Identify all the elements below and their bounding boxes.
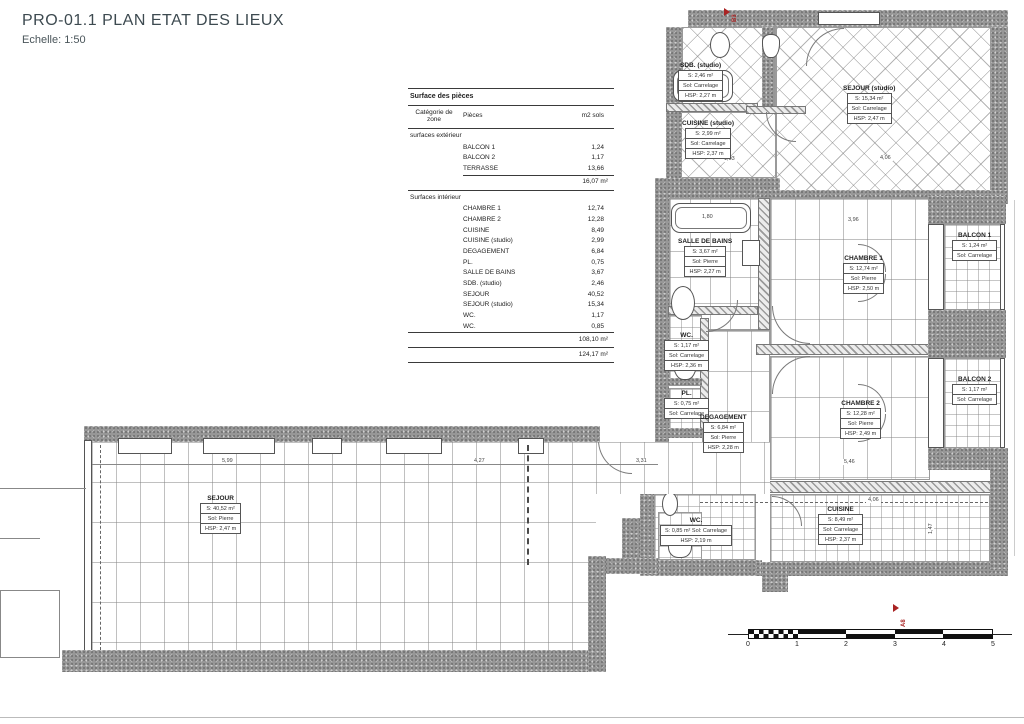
- room-info-box: S: 8,49 m² Sol: Carrelage HSP: 2,37 m: [818, 514, 863, 545]
- room-floor: Sol: Pierre: [685, 257, 724, 267]
- wall: [928, 196, 1006, 224]
- room-area: S: 12,28 m²: [841, 409, 880, 419]
- interieur-subtotal: 108,10 m²: [408, 333, 614, 347]
- row-value: 2,99: [544, 238, 614, 245]
- room-floor: Sol: Carrelage: [679, 81, 722, 91]
- window: [518, 438, 544, 454]
- room-floor: Sol: Carrelage: [819, 525, 862, 535]
- room-area: S: 8,49 m²: [819, 515, 862, 525]
- surface-table: Surface des pièces Catégorie de zone Piè…: [408, 88, 614, 363]
- wall: [928, 310, 1006, 334]
- room-label-wc2: WC. S: 0,85 m² Sol: Carrelage HSP: 2,19 …: [660, 517, 732, 546]
- room-height: HSP: 2,37 m: [819, 535, 862, 544]
- table-row: CUISINE8,49: [408, 225, 614, 236]
- dimension-label: 4,06: [878, 155, 893, 161]
- room-floor: Sol: Carrelage: [953, 251, 996, 260]
- row-value: 3,67: [544, 270, 614, 277]
- marker-arrow-b3: [724, 8, 730, 16]
- room-info-box: S: 1,17 m² Sol: Carrelage HSP: 2,36 m: [664, 340, 709, 371]
- row-label: CHAMBRE 2: [408, 217, 544, 224]
- table-title: Surface des pièces: [408, 89, 614, 105]
- room-info-box: S: 1,17 m² Sol: Carrelage: [952, 384, 997, 405]
- table-row: SDB. (studio)2,46: [408, 279, 614, 290]
- room-info-box: S: 6,84 m² Sol: Pierre HSP: 2,28 m: [703, 422, 744, 453]
- room-name: SEJOUR: [207, 495, 234, 502]
- room-name: WC.: [690, 517, 703, 524]
- section-exterieur: surfaces extérieur: [408, 129, 614, 143]
- wall: [928, 334, 1006, 358]
- room-label-salle-de-bains: SALLE DE BAINS S: 3,67 m² Sol: Pierre HS…: [678, 238, 732, 277]
- room-floor: Sol: Pierre: [201, 514, 240, 524]
- row-value: 12,74: [544, 206, 614, 213]
- floor-sejour: [92, 442, 596, 652]
- room-floor: Sol: Pierre: [841, 419, 880, 429]
- dimension-line: [700, 502, 988, 503]
- room-info-box: S: 40,52 m² Sol: Pierre HSP: 2,47 m: [200, 503, 241, 534]
- row-value: 15,34: [544, 302, 614, 309]
- dimension-label: 3,96: [846, 217, 861, 223]
- room-height: HSP: 2,27 m: [685, 267, 724, 276]
- demolition-dashline: [100, 445, 101, 650]
- room-area: S: 1,17 m²: [953, 385, 996, 395]
- window: [386, 438, 442, 454]
- row-value: 0,85: [544, 324, 614, 331]
- room-info-box: S: 15,34 m² Sol: Carrelage HSP: 2,47 m: [847, 93, 892, 124]
- wall: [756, 562, 1008, 576]
- scalebar-segment: [895, 630, 944, 638]
- scalebar: [748, 629, 993, 639]
- dimension-label: 1,47: [928, 521, 934, 536]
- room-area: S: 0,85 m² Sol: Carrelage: [661, 526, 731, 536]
- marker-a8: A8: [901, 619, 907, 627]
- wall: [990, 448, 1008, 570]
- section-interieur: Surfaces intérieur: [408, 191, 614, 205]
- scalebar-segment: [846, 630, 895, 638]
- toilet-icon: [762, 34, 780, 58]
- room-name: DEGAGEMENT: [700, 414, 747, 421]
- room-info-box: S: 2,46 m² Sol: Carrelage HSP: 2,27 m: [678, 70, 723, 101]
- room-label-balcon2: BALCON 2 S: 1,17 m² Sol: Carrelage: [952, 376, 997, 405]
- scalebar-tick: 5: [988, 641, 998, 648]
- table-row: CUISINE (studio)2,99: [408, 236, 614, 247]
- dimension-label: 1,80: [700, 214, 715, 220]
- room-area: S: 15,34 m²: [848, 94, 891, 104]
- room-area: S: 2,99 m²: [686, 129, 729, 139]
- room-label-wc1: WC. S: 1,17 m² Sol: Carrelage HSP: 2,36 …: [664, 332, 709, 371]
- sink-icon: [710, 32, 730, 58]
- wall: [762, 562, 788, 592]
- room-name: SALLE DE BAINS: [678, 238, 732, 245]
- room-height: HSP: 2,27 m: [679, 91, 722, 100]
- subtotal-value: 108,10 m²: [408, 337, 614, 344]
- balcony-edge: [1000, 358, 1005, 448]
- wall: [991, 27, 1008, 196]
- balcony-edge: [1000, 224, 1005, 310]
- exterieur-subtotal: 16,07 m²: [408, 176, 614, 190]
- col-category: Catégorie de zone: [408, 110, 460, 123]
- wall: [640, 560, 762, 576]
- dimension-line: [92, 464, 658, 465]
- room-label-balcon1: BALCON 1 S: 1,24 m² Sol: Carrelage: [952, 232, 997, 261]
- row-value: 1,24: [544, 145, 614, 152]
- table-row: SALLE DE BAINS3,67: [408, 268, 614, 279]
- room-height: HSP: 2,28 m: [704, 443, 743, 452]
- room-floor: Sol: Carrelage: [665, 351, 708, 361]
- window: [118, 438, 172, 454]
- scalebar-segment: [943, 630, 992, 638]
- room-label-chambre2: CHAMBRE 2 S: 12,28 m² Sol: Pierre HSP: 2…: [840, 400, 881, 439]
- room-name: SDB. (studio): [680, 62, 721, 69]
- row-label: PL.: [408, 260, 544, 267]
- subtotal-value: 16,07 m²: [408, 179, 614, 186]
- site-line: [1014, 200, 1015, 556]
- table-row: CHAMBRE 212,28: [408, 215, 614, 226]
- room-info-box: S: 12,74 m² Sol: Pierre HSP: 2,50 m: [843, 263, 884, 294]
- room-floor: Sol: Carrelage: [848, 104, 891, 114]
- room-name: PL.: [682, 390, 692, 397]
- wall: [588, 556, 606, 672]
- row-value: 1,17: [544, 155, 614, 162]
- row-label: SEJOUR: [408, 292, 544, 299]
- room-name: WC.: [680, 332, 693, 339]
- row-label: CUISINE (studio): [408, 238, 544, 245]
- grand-total: 124,17 m²: [408, 348, 614, 362]
- row-label: CHAMBRE 1: [408, 206, 544, 213]
- floor-plan-sheet: PRO-01.1 PLAN ETAT DES LIEUX Echelle: 1:…: [0, 0, 1024, 724]
- row-value: 13,66: [544, 166, 614, 173]
- floor-cuisine: [770, 494, 990, 562]
- room-label-chambre1: CHAMBRE 1 S: 12,74 m² Sol: Pierre HSP: 2…: [843, 255, 884, 294]
- table-row: TERRASSE13,66: [408, 164, 614, 175]
- window-wall: [84, 440, 92, 652]
- table-row: WC.0,85: [408, 322, 614, 333]
- table-row: DEGAGEMENT6,84: [408, 247, 614, 258]
- row-label: DEGAGEMENT: [408, 249, 544, 256]
- room-height: HSP: 2,47 m: [201, 524, 240, 533]
- room-name: CHAMBRE 2: [841, 400, 880, 407]
- room-height: HSP: 2,47 m: [848, 114, 891, 123]
- window: [203, 438, 275, 454]
- row-label: SDB. (studio): [408, 281, 544, 288]
- table-row: SEJOUR (studio)15,34: [408, 300, 614, 311]
- window: [312, 438, 342, 454]
- room-area: S: 12,74 m²: [844, 264, 883, 274]
- terrace-outline: [0, 538, 40, 539]
- room-floor: Sol: Pierre: [844, 274, 883, 284]
- scalebar-tick: 3: [890, 641, 900, 648]
- table-row: BALCON 11,24: [408, 143, 614, 154]
- room-label-cuisine-studio: CUISINE (studio) S: 2,99 m² Sol: Carrela…: [682, 120, 734, 159]
- page-title: PRO-01.1 PLAN ETAT DES LIEUX: [22, 12, 284, 30]
- dimension-label: 4,06: [866, 497, 881, 503]
- room-area: S: 1,17 m²: [665, 341, 708, 351]
- room-height: HSP: 2,19 m: [661, 536, 731, 545]
- row-label: CUISINE: [408, 228, 544, 235]
- window-door: [928, 224, 944, 310]
- room-info-box: S: 1,24 m² Sol: Carrelage: [952, 240, 997, 261]
- dimension-label: 3,31: [634, 458, 649, 464]
- scale-label: Echelle: 1:50: [22, 34, 86, 46]
- row-label: BALCON 1: [408, 145, 544, 152]
- row-label: WC.: [408, 313, 544, 320]
- room-area: S: 0,75 m²: [665, 399, 708, 409]
- row-value: 8,49: [544, 228, 614, 235]
- room-name: BALCON 1: [958, 232, 991, 239]
- scalebar-tick: 4: [939, 641, 949, 648]
- room-height: HSP: 2,37 m: [686, 149, 729, 158]
- dimension-label: 5,99: [220, 458, 235, 464]
- dimension-label: 5,46: [842, 459, 857, 465]
- room-info-box: S: 2,99 m² Sol: Carrelage HSP: 2,37 m: [685, 128, 730, 159]
- room-label-cuisine: CUISINE S: 8,49 m² Sol: Carrelage HSP: 2…: [818, 506, 863, 545]
- room-info-box: S: 3,67 m² Sol: Pierre HSP: 2,27 m: [684, 246, 725, 277]
- room-name: BALCON 2: [958, 376, 991, 383]
- table-row: CHAMBRE 112,74: [408, 204, 614, 215]
- room-floor: Sol: Pierre: [704, 433, 743, 443]
- room-info-box: S: 12,28 m² Sol: Pierre HSP: 2,49 m: [840, 408, 881, 439]
- marker-arrow-a8: [893, 604, 899, 612]
- table-row: BALCON 21,17: [408, 153, 614, 164]
- room-floor: Sol: Carrelage: [686, 139, 729, 149]
- row-label: BALCON 2: [408, 155, 544, 162]
- row-value: 6,84: [544, 249, 614, 256]
- col-pieces: Pièces: [460, 113, 552, 120]
- room-floor: Sol: Carrelage: [953, 395, 996, 404]
- room-info-box: S: 0,85 m² Sol: Carrelage HSP: 2,19 m: [660, 525, 732, 546]
- row-label: WC.: [408, 324, 544, 331]
- row-value: 1,17: [544, 313, 614, 320]
- sink-icon: [671, 286, 695, 320]
- table-row: WC.1,17: [408, 311, 614, 322]
- partition-hatched: [756, 481, 1006, 493]
- room-area: S: 3,67 m²: [685, 247, 724, 257]
- room-label-degagement: DEGAGEMENT S: 6,84 m² Sol: Pierre HSP: 2…: [700, 414, 747, 453]
- terrace-outline: [0, 590, 60, 658]
- row-value: 12,28: [544, 217, 614, 224]
- room-area: S: 40,52 m²: [201, 504, 240, 514]
- marker-b3: B3: [732, 14, 738, 22]
- scalebar-segment: [749, 630, 798, 638]
- row-value: 40,52: [544, 292, 614, 299]
- table-header: Catégorie de zone Pièces m2 sols: [408, 106, 614, 128]
- terrace-outline: [0, 488, 86, 489]
- window: [818, 12, 880, 25]
- room-name: SEJOUR (studio): [843, 85, 895, 92]
- dimension-label: 4,27: [472, 458, 487, 464]
- demolition-dashline: [527, 445, 529, 565]
- wall: [62, 650, 604, 672]
- washbasin-icon: [742, 240, 760, 266]
- room-area: S: 2,46 m²: [679, 71, 722, 81]
- room-area: S: 6,84 m²: [704, 423, 743, 433]
- row-label: TERRASSE: [408, 166, 544, 173]
- table-rule: [408, 362, 614, 363]
- row-label: SEJOUR (studio): [408, 302, 544, 309]
- scalebar-tick: 0: [743, 641, 753, 648]
- room-area: S: 1,24 m²: [953, 241, 996, 251]
- room-label-sejour: SEJOUR S: 40,52 m² Sol: Pierre HSP: 2,47…: [200, 495, 241, 534]
- room-height: HSP: 2,49 m: [841, 429, 880, 438]
- room-label-sdb-studio: SDB. (studio) S: 2,46 m² Sol: Carrelage …: [678, 62, 723, 101]
- room-name: CHAMBRE 1: [844, 255, 883, 262]
- room-label-sejour-studio: SEJOUR (studio) S: 15,34 m² Sol: Carrela…: [843, 85, 895, 124]
- room-name: CUISINE (studio): [682, 120, 734, 127]
- scalebar-tick: 2: [841, 641, 851, 648]
- wall: [655, 428, 702, 438]
- total-value: 124,17 m²: [408, 352, 614, 359]
- row-value: 0,75: [544, 260, 614, 267]
- window-door: [928, 358, 944, 448]
- table-row: PL.0,75: [408, 258, 614, 269]
- scalebar-tick: 1: [792, 641, 802, 648]
- scalebar-segment: [798, 630, 847, 638]
- sink-icon: [662, 492, 678, 516]
- room-name: CUISINE: [827, 506, 853, 513]
- sheet-edge: [0, 717, 1024, 718]
- row-value: 2,46: [544, 281, 614, 288]
- partition-hatched: [756, 344, 932, 355]
- table-row: SEJOUR40,52: [408, 290, 614, 301]
- row-label: SALLE DE BAINS: [408, 270, 544, 277]
- room-height: HSP: 2,50 m: [844, 284, 883, 293]
- wall: [655, 378, 702, 386]
- partition-hatched: [666, 103, 758, 112]
- room-height: HSP: 2,36 m: [665, 361, 708, 370]
- col-m2: m2 sols: [552, 113, 614, 120]
